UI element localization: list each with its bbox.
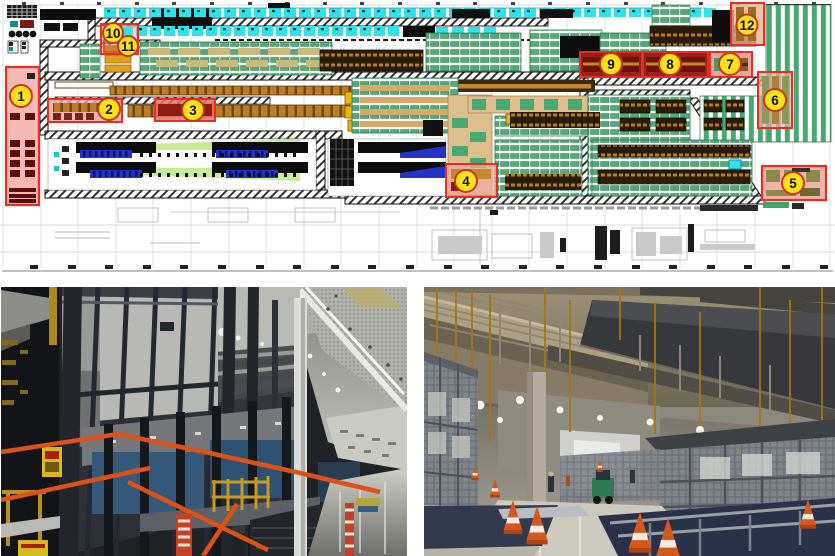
svg-text:9: 9 — [607, 57, 615, 72]
svg-text:4: 4 — [462, 174, 470, 189]
svg-text:12: 12 — [739, 18, 754, 33]
svg-text:6: 6 — [771, 93, 779, 108]
svg-text:8: 8 — [666, 57, 674, 72]
svg-text:2: 2 — [105, 102, 113, 117]
svg-text:11: 11 — [121, 39, 136, 54]
svg-text:7: 7 — [726, 57, 734, 72]
svg-text:10: 10 — [105, 26, 120, 41]
svg-text:3: 3 — [189, 103, 197, 118]
svg-text:1: 1 — [17, 89, 25, 104]
svg-text:5: 5 — [789, 176, 797, 191]
